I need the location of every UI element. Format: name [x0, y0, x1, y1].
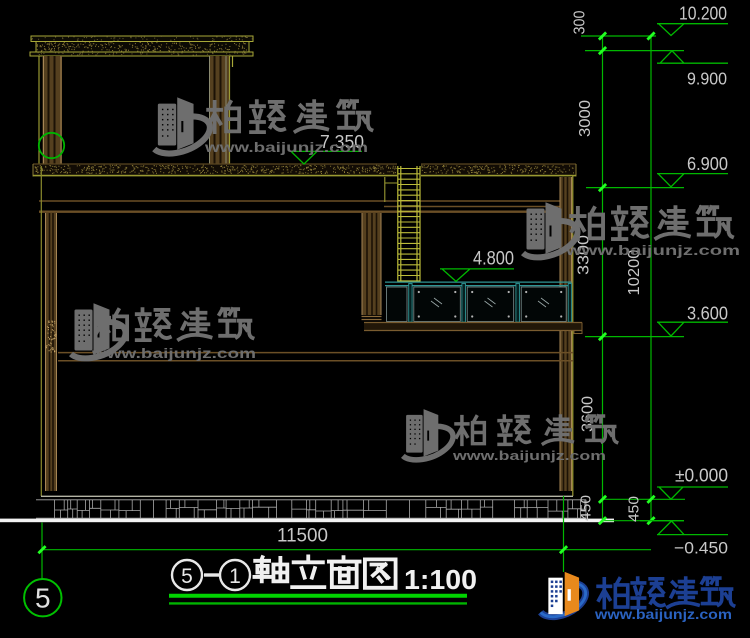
svg-text:6.900: 6.900	[687, 154, 728, 174]
svg-text:5: 5	[35, 583, 51, 614]
svg-text:3000: 3000	[577, 100, 594, 137]
svg-text:450: 450	[626, 496, 643, 522]
svg-text:±0.000: ±0.000	[675, 466, 728, 486]
svg-text:5: 5	[181, 565, 193, 588]
svg-text:9.900: 9.900	[687, 69, 727, 89]
svg-text:−0.450: −0.450	[674, 539, 728, 558]
svg-text:www.baijunjz.com: www.baijunjz.com	[565, 243, 740, 258]
svg-text:1:100: 1:100	[404, 564, 477, 595]
svg-text:3.600: 3.600	[687, 304, 728, 324]
svg-text:www.baijunjz.com: www.baijunjz.com	[91, 346, 256, 361]
svg-text:450: 450	[578, 495, 595, 521]
svg-text:300: 300	[572, 10, 589, 34]
svg-text:10.200: 10.200	[679, 4, 727, 24]
svg-text:4.800: 4.800	[473, 249, 514, 270]
svg-text:11500: 11500	[277, 526, 328, 547]
svg-text:1: 1	[229, 565, 241, 588]
svg-text:www.baijunjz.com: www.baijunjz.com	[594, 607, 732, 622]
svg-text:www.baijunjz.com: www.baijunjz.com	[204, 139, 368, 155]
svg-text:www.baijunjz.com: www.baijunjz.com	[452, 449, 606, 463]
